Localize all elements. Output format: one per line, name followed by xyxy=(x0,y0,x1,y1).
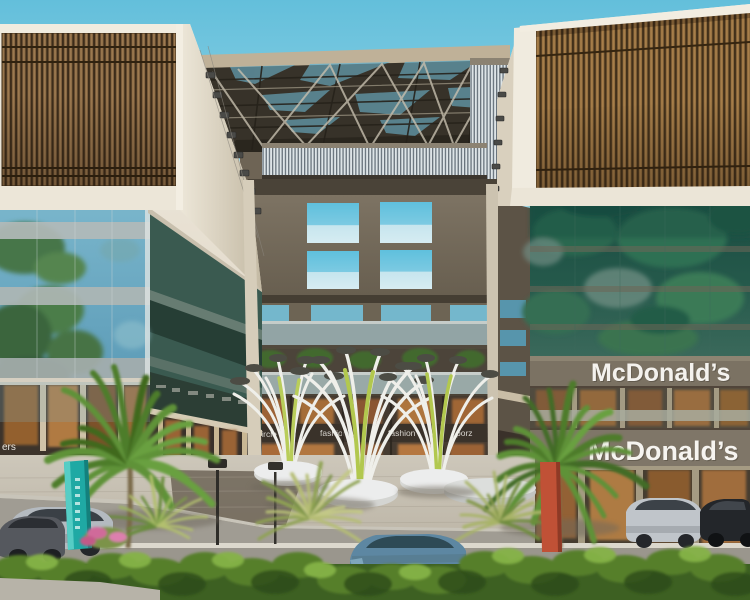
svg-text:McDonald’s: McDonald’s xyxy=(591,359,730,387)
svg-text:ers: ers xyxy=(2,442,16,453)
